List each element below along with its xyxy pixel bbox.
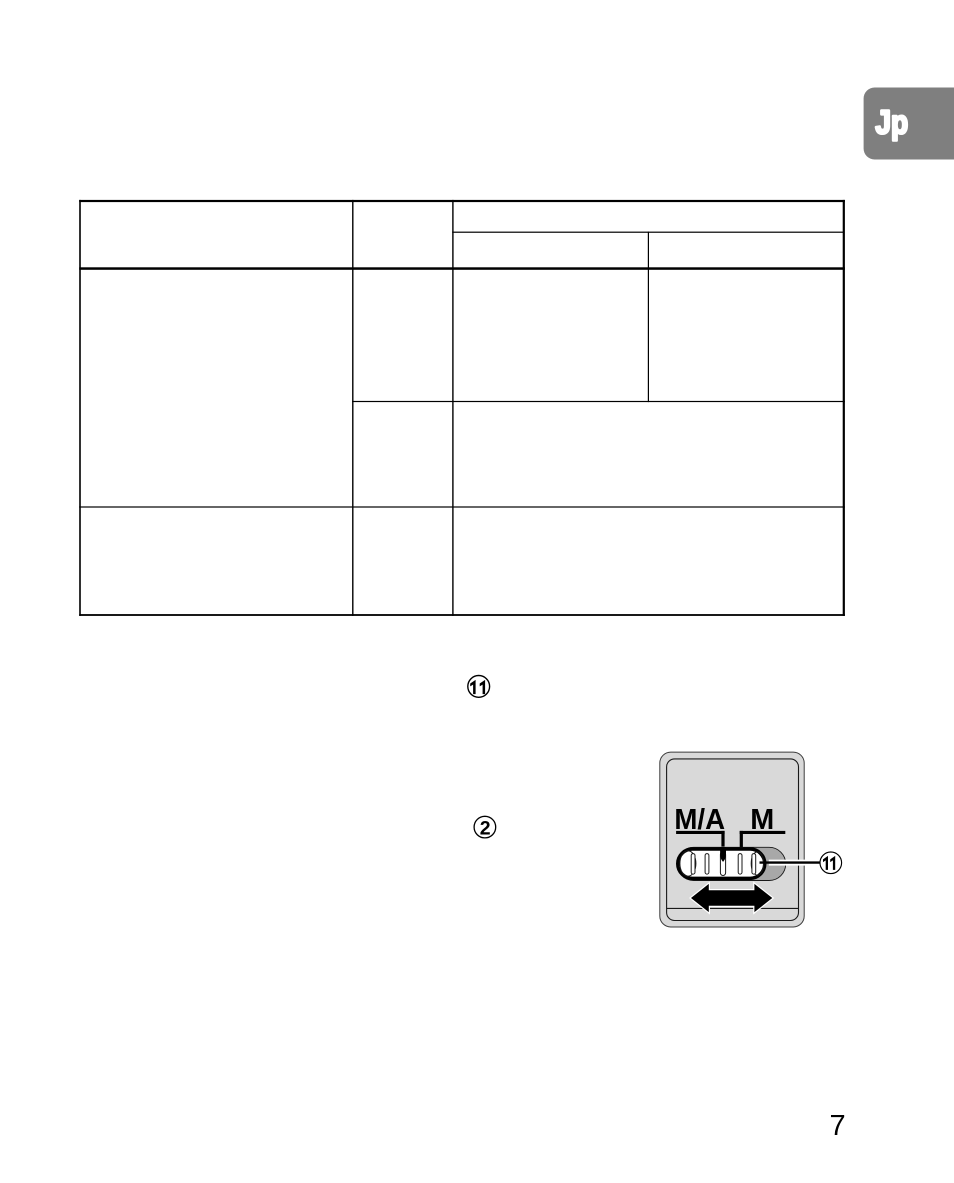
- svg-text:7: 7: [830, 1110, 846, 1142]
- svg-text:2: 2: [480, 818, 491, 840]
- svg-text:Jp: Jp: [875, 105, 908, 142]
- svg-text:M/A: M/A: [674, 802, 725, 835]
